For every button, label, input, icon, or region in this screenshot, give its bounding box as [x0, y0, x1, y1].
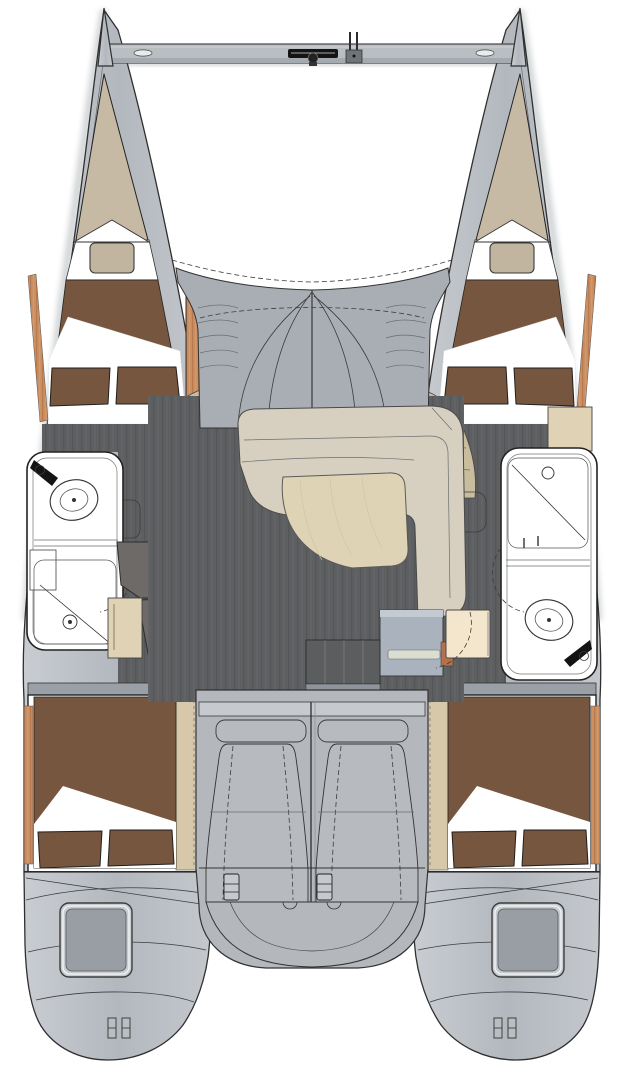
cockpit-seatback-port	[216, 720, 306, 742]
port-aft-wood-trim	[24, 706, 33, 864]
starboard-fwd-wood-trim	[576, 274, 596, 422]
starboard-head	[492, 448, 597, 680]
crossbeam-slot-starboard	[476, 50, 494, 56]
cockpit-latch-starboard	[317, 874, 332, 900]
windlass-gypsy	[308, 53, 318, 63]
port-stern-hatch	[66, 909, 126, 971]
chart-table-slot	[388, 650, 440, 659]
cockpit	[196, 690, 428, 968]
bow-crossbeam	[98, 8, 526, 66]
starboard-aft-pillow-left	[452, 831, 516, 868]
port-shower-drain-dot	[68, 620, 72, 624]
starboard-bow-cushion	[490, 243, 534, 273]
catamaran-floorplan	[0, 0, 624, 1080]
cockpit-seatback-starboard	[318, 720, 408, 742]
coachroof-front	[176, 268, 450, 428]
starboard-aft-shelf	[428, 697, 448, 870]
starboard-cabinet	[548, 407, 592, 451]
floorplan-canvas	[0, 0, 624, 1080]
starboard-aft-pillow-right	[522, 830, 588, 866]
starboard-stern-hatch	[498, 909, 558, 971]
starboard-aft-wood-trim	[591, 706, 600, 864]
windlass-mount	[309, 62, 317, 66]
chart-table	[380, 610, 443, 676]
starboard-head-room	[501, 448, 597, 680]
companionway-sill	[306, 684, 380, 690]
starboard-fwd-pillow-right	[514, 368, 574, 406]
nav-seat	[446, 610, 490, 658]
companionway-steps	[306, 640, 380, 684]
starboard-aft-cabin	[410, 683, 600, 872]
port-aft-shelf	[176, 697, 196, 870]
forestay-pin	[353, 55, 356, 58]
port-toilet-drain	[72, 498, 76, 502]
starboard-stern	[414, 872, 600, 1060]
port-aft-pillow-left	[38, 831, 102, 868]
port-stern	[24, 872, 210, 1060]
starboard-toilet-drain	[547, 618, 551, 622]
cockpit-track-band	[199, 702, 425, 716]
port-fwd-wood-trim	[28, 274, 48, 422]
cockpit-latch-port	[224, 874, 239, 900]
crossbeam-slot-port	[134, 50, 152, 56]
port-aft-cabin	[24, 683, 214, 872]
port-bow-cushion	[90, 243, 134, 273]
galley-fridge	[108, 598, 142, 658]
port-aft-pillow-right	[108, 830, 174, 866]
chart-table-edge	[380, 610, 443, 617]
port-fwd-pillow-left	[50, 368, 110, 406]
